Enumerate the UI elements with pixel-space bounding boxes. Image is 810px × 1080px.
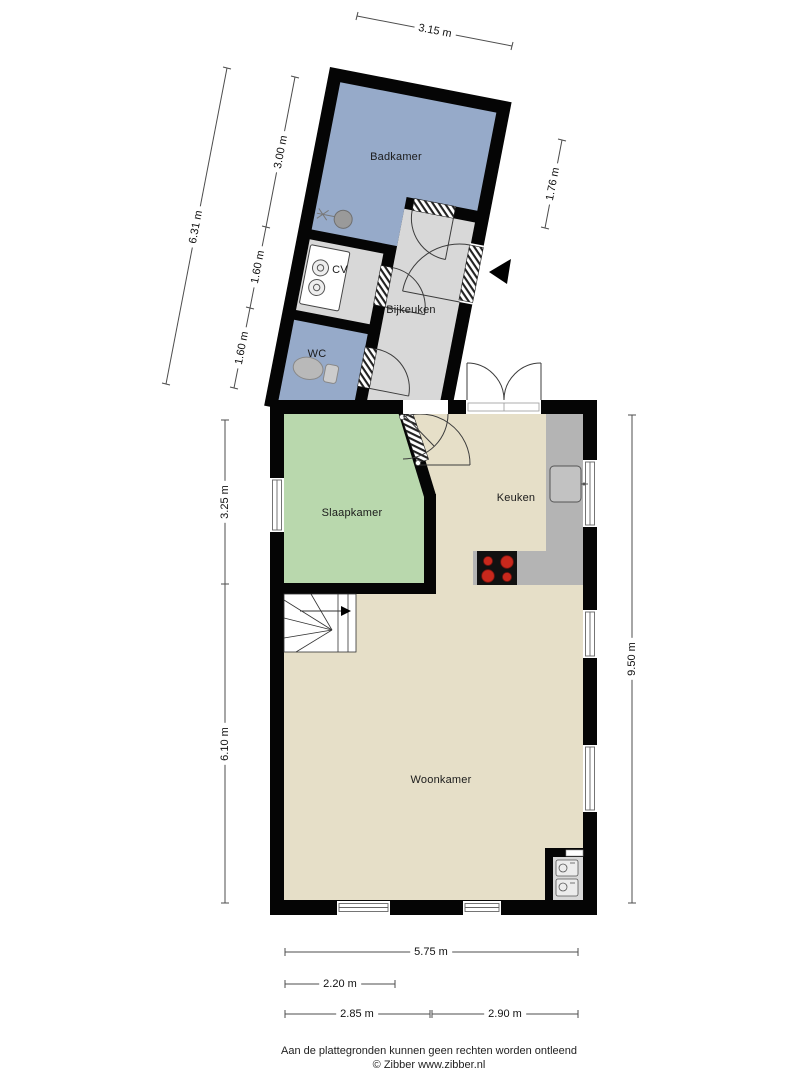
footer-disclaimer: Aan de plattegronden kunnen geen rechten… (281, 1045, 577, 1057)
window-slaapkamer-left (270, 478, 284, 532)
utility-niche (545, 848, 583, 900)
room-label-slaapkamer: Slaapkamer (322, 507, 383, 519)
stove-icon (477, 551, 517, 585)
washer-icon (556, 860, 578, 876)
footer-copyright: © Zibber www.zibber.nl (373, 1059, 486, 1071)
room-label-bijkeuken: Bijkeuken (386, 304, 436, 316)
dimension-label-slaapkamer-h: 3.25 m (219, 481, 231, 523)
dimension-label-bottom-a: 2.85 m (336, 1008, 378, 1020)
dimension-label-right-total: 9.50 m (626, 638, 638, 680)
room-label-keuken: Keuken (497, 492, 536, 504)
french-doors (466, 363, 541, 414)
room-label-cv: CV (332, 264, 348, 276)
window-woonkamer-bottom-2 (463, 901, 501, 915)
wall-horizontal (284, 583, 436, 594)
dimension-label-bottom-total: 5.75 m (410, 946, 452, 958)
dimension-label-bottom-b: 2.90 m (484, 1008, 526, 1020)
room-label-badkamer: Badkamer (370, 151, 422, 163)
stairs-icon (284, 594, 356, 652)
floorplan: Badkamer CV WC Bijkeuken Slaapkamer Keuk… (0, 0, 810, 1080)
dimension-label-bottom-left: 2.20 m (319, 978, 361, 990)
window-woonkamer-right-1 (583, 610, 597, 658)
room-label-woonkamer: Woonkamer (411, 774, 472, 786)
upper-section (264, 67, 511, 441)
entrance-arrow-icon (489, 259, 511, 284)
room-label-wc: WC (308, 348, 327, 360)
window-woonkamer-bottom-1 (337, 901, 390, 915)
dimension-label-woonkamer-h: 6.10 m (219, 723, 231, 765)
dryer-icon (556, 879, 578, 896)
window-keuken-right (583, 460, 597, 527)
window-woonkamer-right-2 (583, 745, 597, 812)
wall-vertical (424, 494, 436, 594)
